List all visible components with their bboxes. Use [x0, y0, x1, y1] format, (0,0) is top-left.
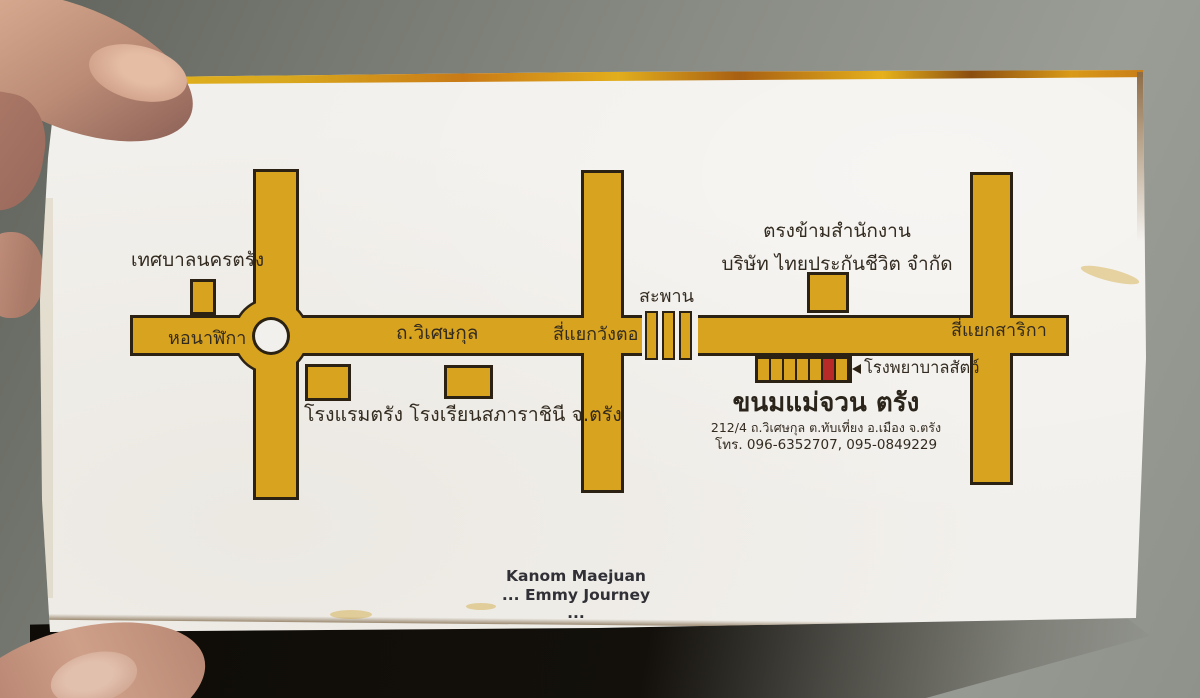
shophouse-row	[755, 356, 852, 383]
label-animal-hospital: โรงพยาบาลสัตว์	[864, 359, 980, 378]
label-hotel-and-school: โรงแรมตรัง โรงเรียนสภาราชินี จ.ตรัง	[304, 404, 622, 426]
label-bridge: สะพาน	[639, 287, 694, 308]
label-opposite-office: ตรงข้ามสำนักงาน บริษัท ไทยประกันชีวิต จำ…	[702, 215, 972, 281]
shop-address: 212/4 ถ.วิเศษกุล ต.ทับเที่ยง อ.เมือง จ.ต…	[706, 421, 946, 435]
bridge-icon	[642, 308, 698, 364]
shop-location-arrow-icon	[852, 364, 861, 374]
label-sarika-intersection: สี่แยกสาริกา	[951, 321, 1047, 342]
hotel-building	[308, 367, 348, 398]
label-municipality: เทศบาลนครตรัง	[131, 250, 264, 272]
label-opposite-office-line1: ตรงข้ามสำนักงาน	[702, 215, 972, 248]
watermark-line1: Kanom Maejuan	[496, 567, 656, 586]
label-main-road: ถ.วิเศษกุล	[396, 323, 478, 345]
snack-box: เทศบาลนครตรัง หอนาฬิกา ถ.วิเศษกุล สี่แยก…	[38, 58, 1156, 640]
watermark: Kanom Maejuan ... Emmy Journey ...	[496, 567, 656, 623]
shop-marker-red	[823, 359, 834, 380]
index-finger	[0, 232, 44, 318]
label-wangto-intersection: สี่แยกวังตอ	[553, 325, 638, 346]
shop-phone: โทร. 096-6352707, 095-0849229	[706, 438, 946, 454]
label-opposite-office-line2: บริษัท ไทยประกันชีวิต จำกัด	[702, 248, 972, 281]
watermark-line2: ... Emmy Journey ...	[496, 586, 656, 623]
school-building	[447, 368, 490, 396]
municipality-building	[193, 282, 213, 312]
roundabout-centre	[255, 320, 287, 352]
photo-background: เทศบาลนครตรัง หอนาฬิกา ถ.วิเศษกุล สี่แยก…	[0, 0, 1200, 698]
label-clock-tower: หอนาฬิกา	[168, 329, 246, 350]
shop-name: ขนมแม่จวน ตรัง	[716, 389, 936, 419]
